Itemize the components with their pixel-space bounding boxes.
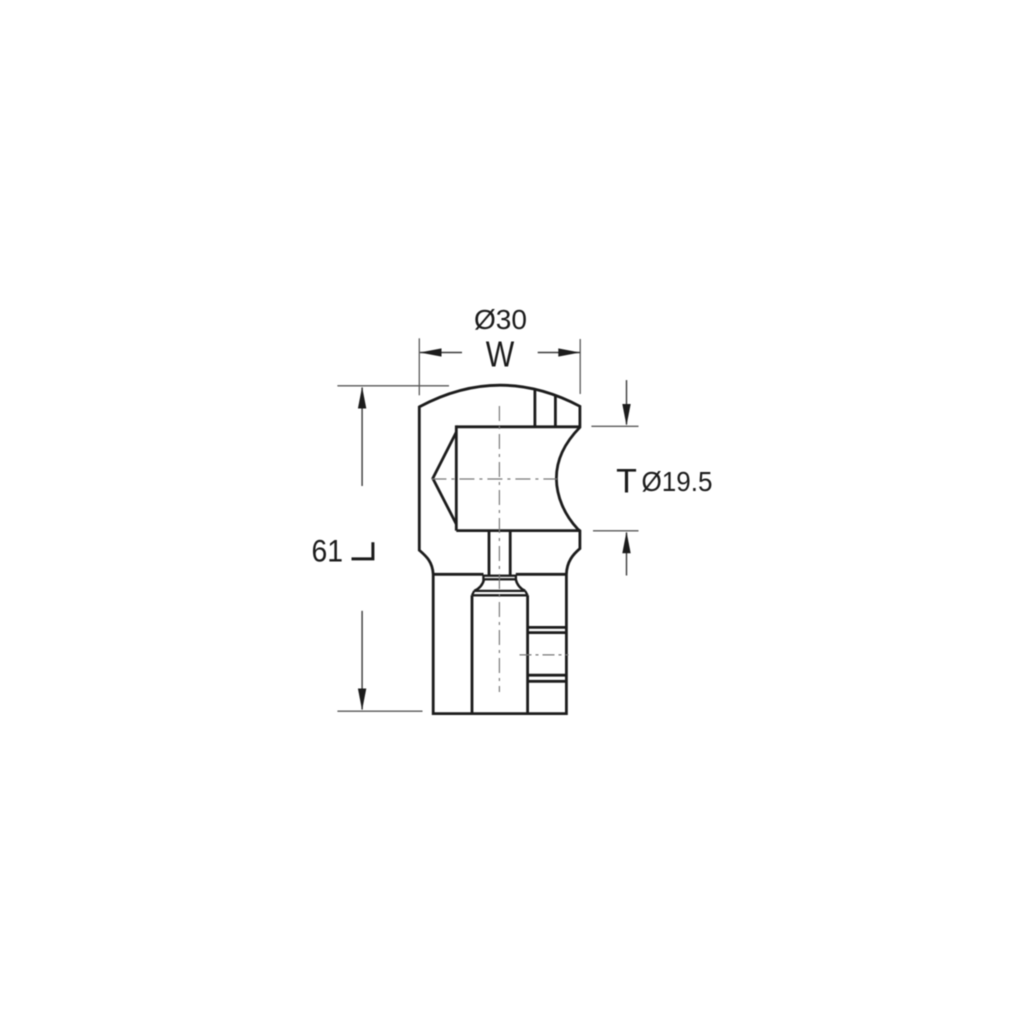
svg-text:T: T — [616, 463, 637, 501]
svg-text:61: 61 — [312, 533, 344, 569]
svg-text:W: W — [486, 334, 515, 375]
svg-text:Ø19.5: Ø19.5 — [642, 466, 713, 497]
svg-text:Ø30: Ø30 — [474, 304, 527, 335]
